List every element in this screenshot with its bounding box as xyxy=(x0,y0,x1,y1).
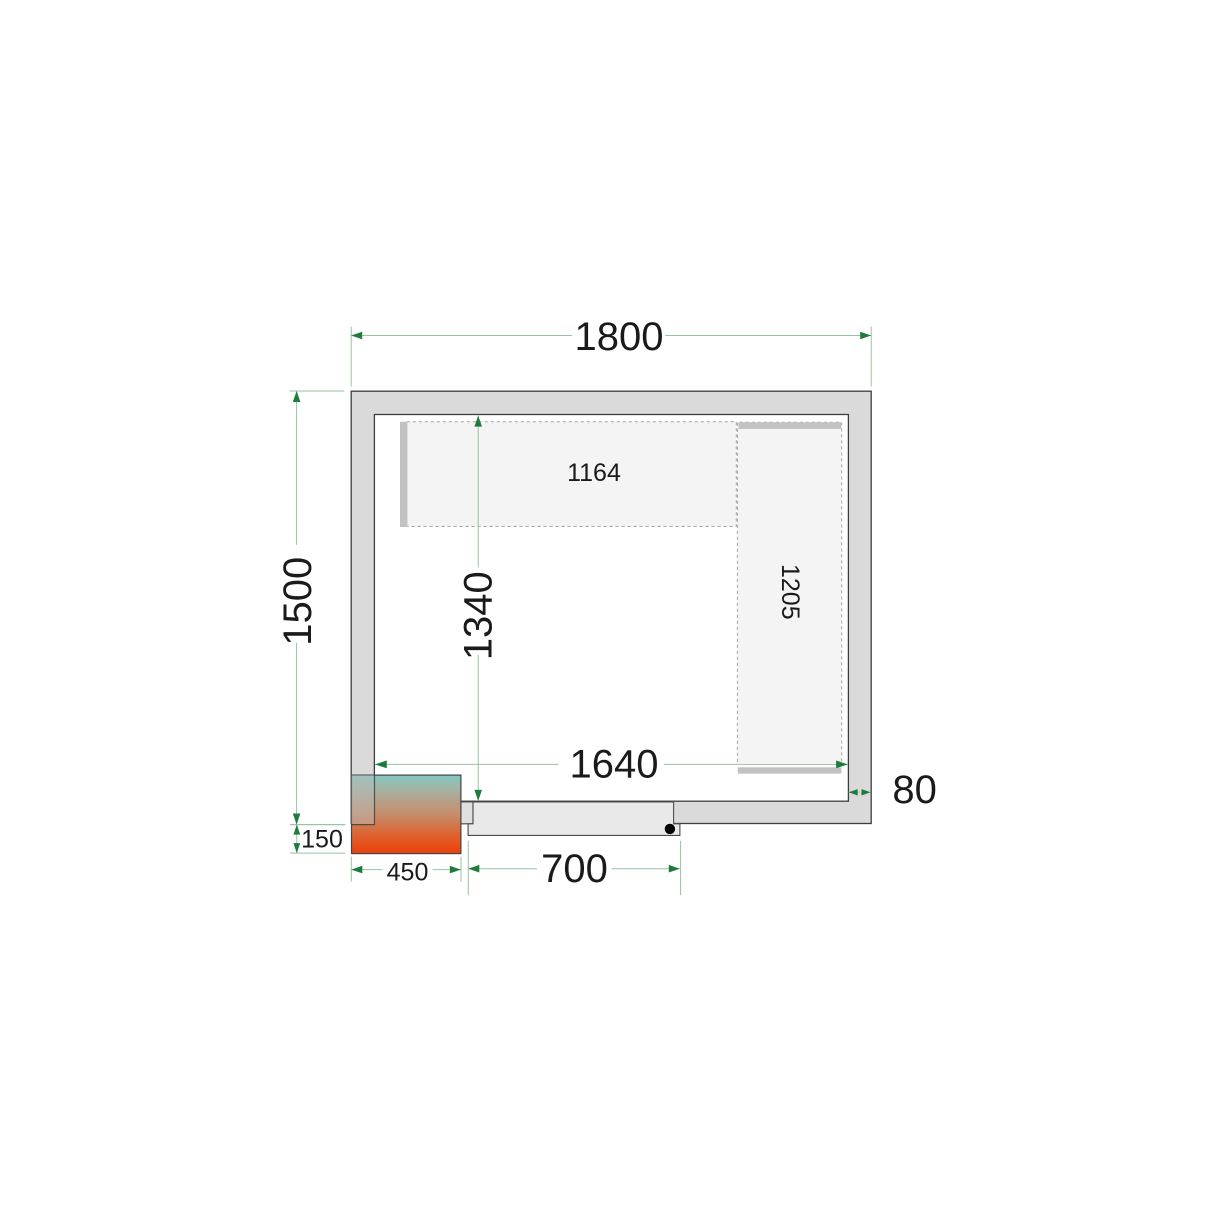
svg-text:80: 80 xyxy=(892,768,937,812)
svg-text:150: 150 xyxy=(301,825,343,853)
svg-text:1164: 1164 xyxy=(567,459,621,487)
svg-text:1500: 1500 xyxy=(276,557,320,646)
svg-text:700: 700 xyxy=(541,847,608,891)
svg-text:1340: 1340 xyxy=(457,571,501,660)
svg-text:1800: 1800 xyxy=(575,315,664,359)
svg-text:1205: 1205 xyxy=(776,564,804,620)
svg-text:1640: 1640 xyxy=(570,742,659,786)
svg-text:450: 450 xyxy=(387,858,429,886)
